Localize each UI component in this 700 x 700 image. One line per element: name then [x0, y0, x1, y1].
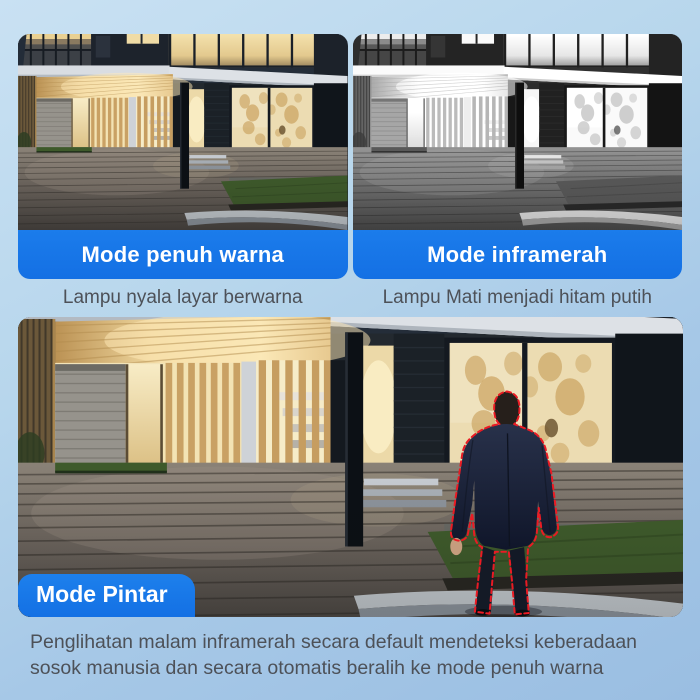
- full-color-mode-caption: Lampu nyala layar berwarna: [18, 287, 348, 309]
- infrared-mode-caption: Lampu Mati menjadi hitam putih: [353, 287, 683, 309]
- full-color-mode-label: Mode penuh warna: [82, 242, 284, 268]
- smart-mode-caption: Penglihatan malam inframerah secara defa…: [30, 630, 682, 682]
- comparison-row: Mode penuh warna Mode inframerah: [18, 34, 682, 279]
- full-color-mode-banner: Mode penuh warna: [18, 230, 348, 279]
- house-night-infrared-scene: [353, 34, 683, 230]
- smart-mode-caption-line1: Penglihatan malam inframerah secara defa…: [30, 630, 682, 656]
- infrared-mode-label: Mode inframerah: [427, 242, 607, 268]
- smart-mode-label: Mode Pintar: [36, 581, 168, 607]
- color-night-view-image: [18, 34, 348, 230]
- panel-infrared-mode: Mode inframerah: [353, 34, 683, 279]
- smart-mode-caption-line2: sosok manusia dan secara otomatis berali…: [30, 656, 682, 682]
- comparison-captions: Lampu nyala layar berwarna Lampu Mati me…: [18, 287, 682, 309]
- house-night-color-scene: [18, 34, 348, 230]
- infrared-night-view-image: [353, 34, 683, 230]
- panel-smart-mode: Mode Pintar: [18, 317, 683, 617]
- smart-mode-banner: Mode Pintar: [18, 574, 195, 617]
- smart-mode-detection-scene: [18, 317, 683, 617]
- panel-full-color-mode: Mode penuh warna: [18, 34, 348, 279]
- promo-card: Mode penuh warna Mode inframerah Lampu n…: [0, 0, 700, 682]
- infrared-mode-banner: Mode inframerah: [353, 230, 683, 279]
